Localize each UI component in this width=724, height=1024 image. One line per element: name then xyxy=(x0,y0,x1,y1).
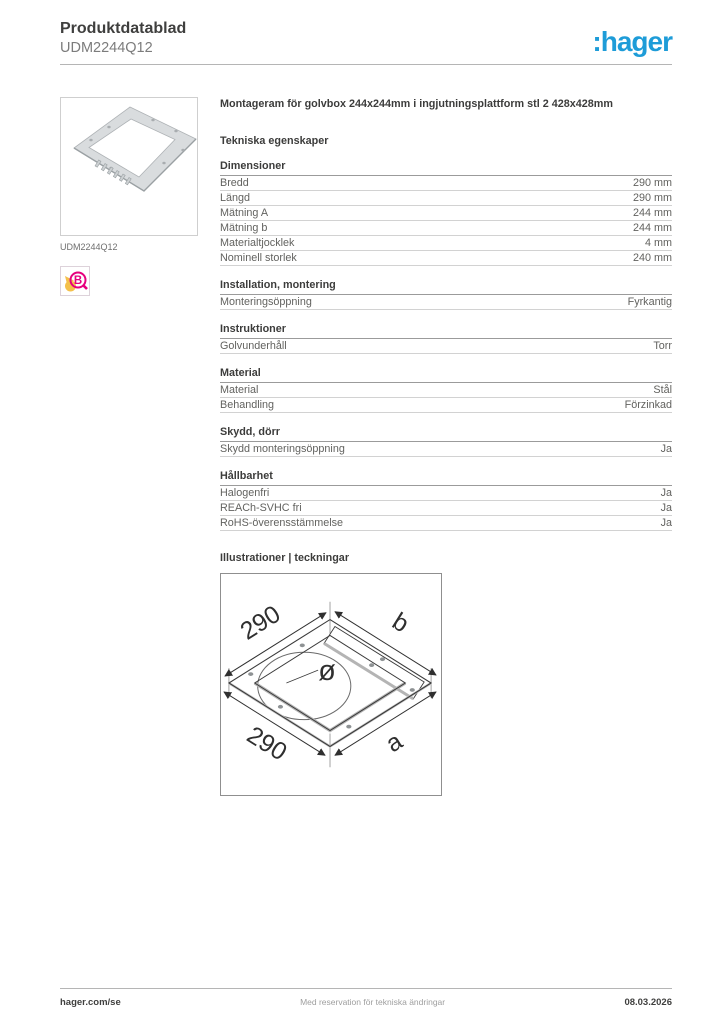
row-value: Fyrkantig xyxy=(628,297,672,307)
row-value: Förzinkad xyxy=(625,400,672,410)
datasheet-page: Produktdatablad UDM2244Q12 :hager xyxy=(0,0,724,1024)
group-title: Installation, montering xyxy=(220,279,672,295)
group-title: Material xyxy=(220,367,672,383)
table-row: Mätning b244 mm xyxy=(220,221,672,236)
illustrations-heading: Illustrationer | teckningar xyxy=(220,552,672,564)
header-titles: Produktdatablad UDM2244Q12 xyxy=(60,20,186,56)
header: Produktdatablad UDM2244Q12 :hager xyxy=(0,0,724,56)
technical-drawing-box: 290 b 290 a ø xyxy=(220,573,442,796)
group-title: Skydd, dörr xyxy=(220,426,672,442)
bvb-b-icon: B xyxy=(61,267,89,295)
row-value: Ja xyxy=(661,503,672,513)
row-value: 244 mm xyxy=(633,208,672,218)
row-label: Monteringsöppning xyxy=(220,297,312,307)
group-installation: Installation, montering Monteringsöppnin… xyxy=(220,279,672,310)
group-title: Dimensioner xyxy=(220,160,672,176)
row-label: Mätning b xyxy=(220,223,267,233)
row-value: Ja xyxy=(661,488,672,498)
right-column: Montageram för golvbox 244x244mm i ingju… xyxy=(220,97,672,795)
row-label: Halogenfri xyxy=(220,488,269,498)
diameter-symbol: ø xyxy=(318,655,336,687)
footer-disclaimer: Med reservation för tekniska ändringar xyxy=(300,997,445,1007)
row-value: 290 mm xyxy=(633,178,672,188)
row-value: 244 mm xyxy=(633,223,672,233)
row-label: RoHS-överensstämmelse xyxy=(220,518,343,528)
dim-290-top: 290 xyxy=(236,601,285,646)
table-row: Nominell storlek240 mm xyxy=(220,251,672,266)
table-row: Längd290 mm xyxy=(220,191,672,206)
row-label: Längd xyxy=(220,193,250,203)
table-row: Materialtjocklek4 mm xyxy=(220,236,672,251)
group-title: Instruktioner xyxy=(220,323,672,339)
hager-logo: :hager xyxy=(592,28,672,56)
table-row: Bredd290 mm xyxy=(220,176,672,191)
dim-290-bottom: 290 xyxy=(242,722,291,767)
table-row: BehandlingFörzinkad xyxy=(220,398,672,413)
table-row: Mätning A244 mm xyxy=(220,206,672,221)
row-label: REACh-SVHC fri xyxy=(220,503,302,513)
row-label: Material xyxy=(220,385,258,395)
footer-date: 08.03.2026 xyxy=(624,997,672,1008)
row-label: Behandling xyxy=(220,400,274,410)
group-title: Hållbarhet xyxy=(220,470,672,486)
dim-a-label: a xyxy=(381,728,407,758)
group-material: Material MaterialStål BehandlingFörzinka… xyxy=(220,367,672,413)
content: UDM2244Q12 B Montageram för golvbox 244x… xyxy=(0,97,724,795)
footer-site: hager.com/se xyxy=(60,997,121,1008)
group-dimensioner: Dimensioner Bredd290 mm Längd290 mm Mätn… xyxy=(220,160,672,266)
bvb-certification-badge: B xyxy=(60,266,90,296)
group-instruktioner: Instruktioner GolvunderhållTorr xyxy=(220,323,672,354)
technical-properties-heading: Tekniska egenskaper xyxy=(220,135,672,147)
svg-text:B: B xyxy=(74,276,82,288)
row-label: Nominell storlek xyxy=(220,253,297,263)
row-label: Mätning A xyxy=(220,208,268,218)
row-value: 4 mm xyxy=(645,238,672,248)
table-row: RoHS-överensstämmelseJa xyxy=(220,516,672,531)
product-image-box xyxy=(60,97,198,236)
row-label: Materialtjocklek xyxy=(220,238,294,248)
group-skydd: Skydd, dörr Skydd monteringsöppningJa xyxy=(220,426,672,457)
table-row: HalogenfriJa xyxy=(220,486,672,501)
footer: hager.com/se Med reservation för teknisk… xyxy=(60,988,672,1008)
row-value: 290 mm xyxy=(633,193,672,203)
product-reference: UDM2244Q12 xyxy=(60,40,186,56)
table-row: REACh-SVHC friJa xyxy=(220,501,672,516)
row-label: Bredd xyxy=(220,178,249,188)
left-column: UDM2244Q12 B xyxy=(60,97,200,795)
row-value: Stål xyxy=(653,385,672,395)
group-hallbarhet: Hållbarhet HalogenfriJa REACh-SVHC friJa… xyxy=(220,470,672,531)
table-row: MaterialStål xyxy=(220,383,672,398)
row-value: Ja xyxy=(661,518,672,528)
isometric-drawing-icon: 290 b 290 a ø xyxy=(221,574,441,795)
row-value: Torr xyxy=(653,341,672,351)
table-row: MonteringsöppningFyrkantig xyxy=(220,295,672,310)
table-row: GolvunderhållTorr xyxy=(220,339,672,354)
dim-b-label: b xyxy=(387,608,413,638)
row-label: Skydd monteringsöppning xyxy=(220,444,345,454)
table-row: Skydd monteringsöppningJa xyxy=(220,442,672,457)
row-label: Golvunderhåll xyxy=(220,341,287,351)
product-title: Montageram för golvbox 244x244mm i ingju… xyxy=(220,98,672,111)
row-value: 240 mm xyxy=(633,253,672,263)
row-value: Ja xyxy=(661,444,672,454)
header-divider xyxy=(60,64,672,65)
product-image-caption: UDM2244Q12 xyxy=(60,242,200,252)
product-photo-frame-icon xyxy=(61,98,199,237)
document-title: Produktdatablad xyxy=(60,20,186,38)
